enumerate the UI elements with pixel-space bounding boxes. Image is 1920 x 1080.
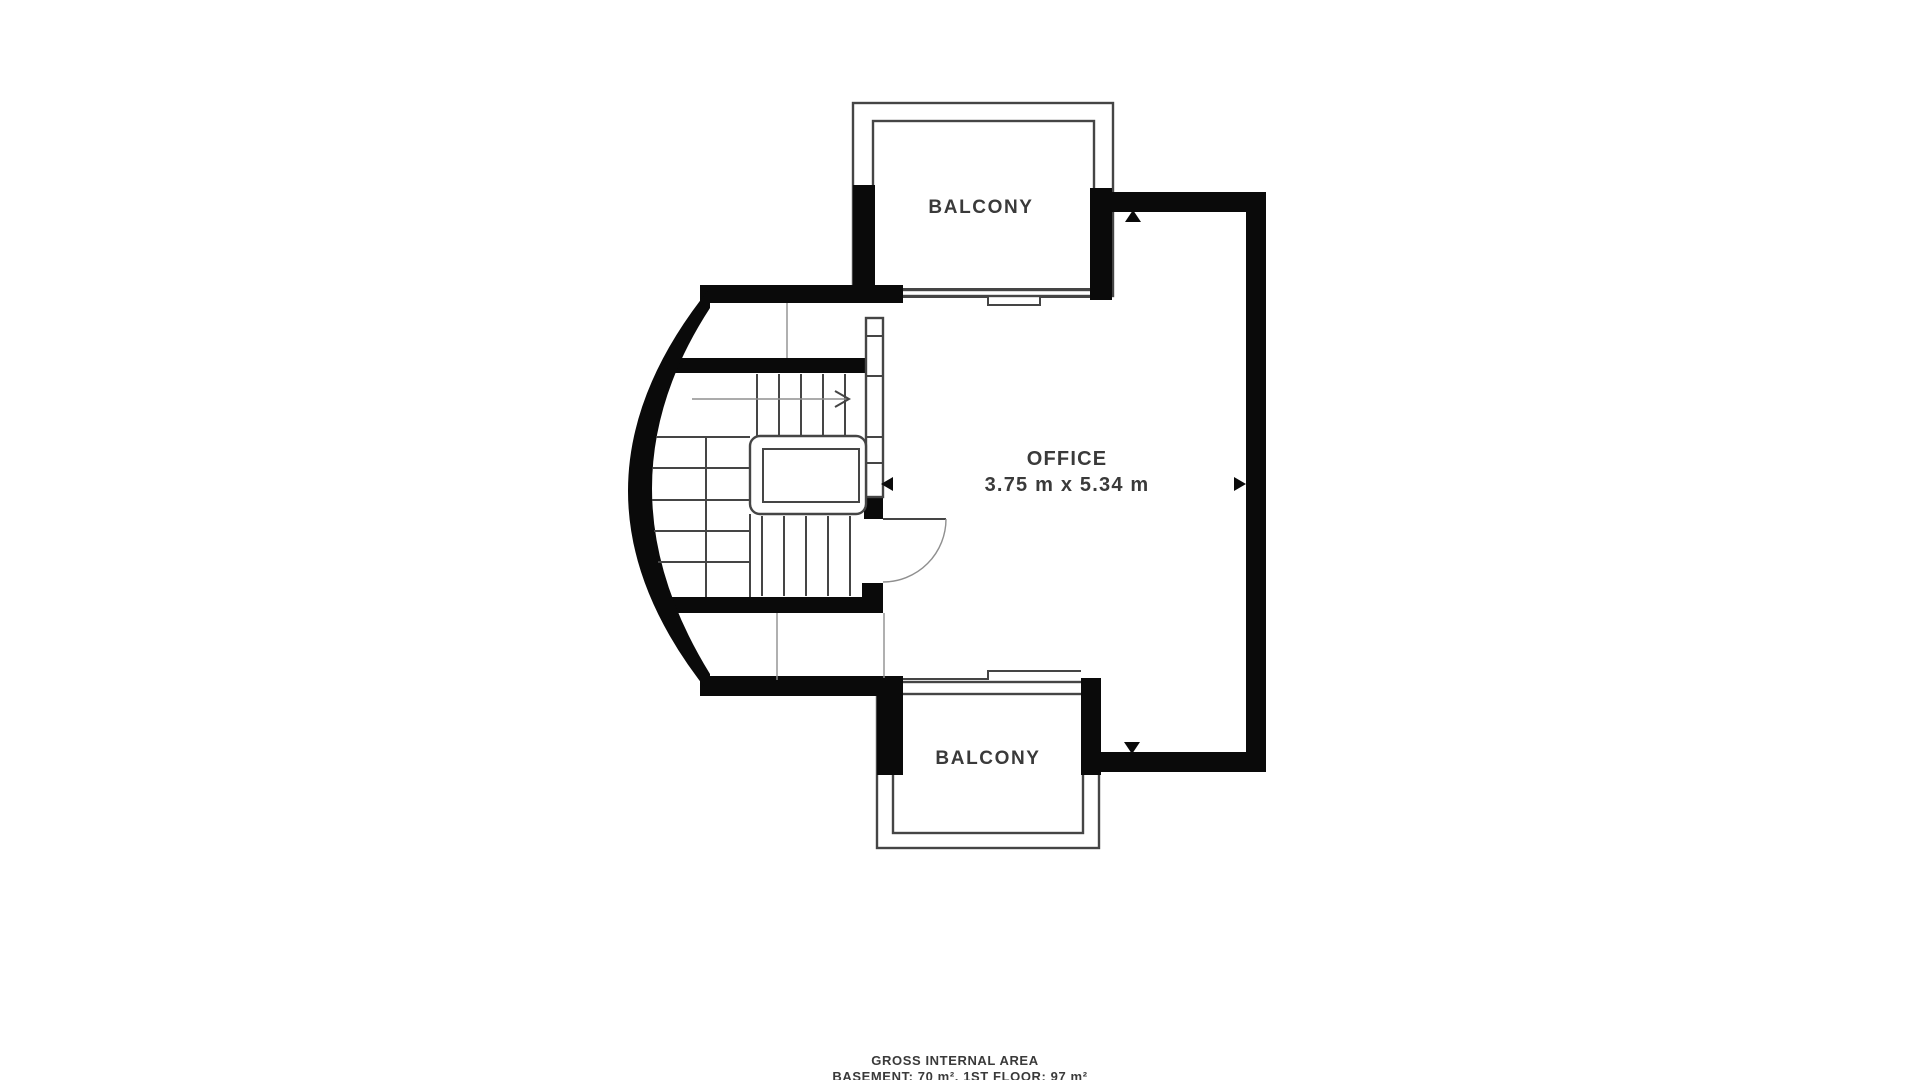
staircase [652, 374, 866, 597]
stair-void [750, 436, 866, 514]
office-label: OFFICE [1027, 448, 1108, 470]
top-balcony-label: BALCONY [928, 197, 1033, 218]
office-dimensions-label: 3.75 m x 5.34 m [985, 474, 1150, 496]
wall-office-south [1087, 752, 1266, 772]
wall-top-balcony-left-stub [853, 185, 875, 303]
floor-plan-svg: BALCONY OFFICE 3.75 m x 5.34 m BALCONY G… [0, 0, 1920, 1080]
wall-stair-north [666, 358, 883, 373]
stair-treads-lower [762, 516, 850, 596]
curved-west-wall [628, 288, 710, 694]
stair-treads-upper [757, 374, 845, 436]
threshold-step-line [903, 297, 1090, 305]
west-hollow-wall-outline [866, 318, 883, 497]
west-hollow-wall [866, 318, 883, 497]
wall-office-north [1090, 192, 1266, 212]
threshold-step-line [903, 671, 1081, 679]
wall-stair-south [666, 597, 883, 613]
footer-gross-internal-area: GROSS INTERNAL AREA [871, 1053, 1038, 1068]
wall-door-jamb-lower [862, 583, 883, 613]
door-swing-arc [883, 519, 946, 582]
wall-bottom-balcony-right-stub [1081, 678, 1101, 775]
floor-plan-page: BALCONY OFFICE 3.75 m x 5.34 m BALCONY G… [0, 0, 1920, 1080]
dimension-arrow-right-icon [1234, 477, 1246, 491]
wall-office-east [1246, 192, 1266, 772]
office-door [883, 519, 946, 582]
footer-area-values: BASEMENT: 70 m², 1ST FLOOR: 97 m² [832, 1069, 1087, 1080]
bottom-balcony-label: BALCONY [935, 748, 1040, 769]
stair-direction-arrow [692, 391, 849, 407]
wall-bottom-left [700, 676, 903, 696]
stair-winder-treads [652, 437, 750, 597]
